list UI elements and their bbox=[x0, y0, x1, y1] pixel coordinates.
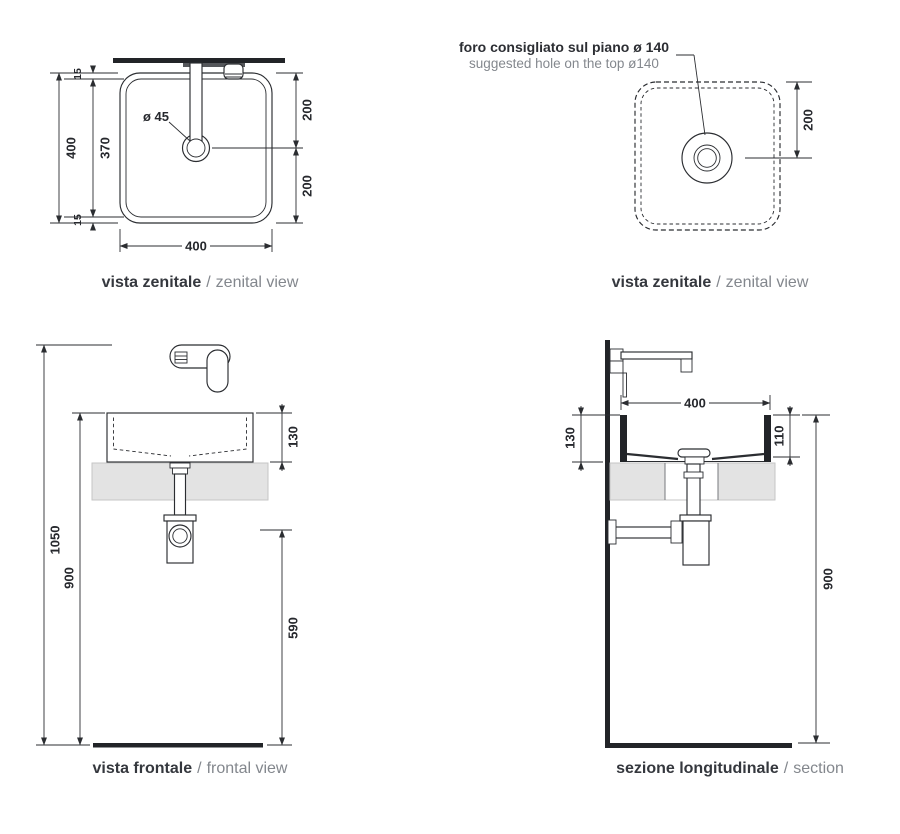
view-frontal: 1050 900 130 590 bbox=[36, 345, 301, 748]
countertop-right-block bbox=[718, 463, 775, 500]
basin-floor-left bbox=[627, 454, 678, 459]
dim-drain-diameter: ø 45 bbox=[143, 109, 169, 124]
dim-right-upper: 200 bbox=[300, 99, 315, 121]
caption-italian: vista zenitale bbox=[612, 274, 712, 291]
countertop-left-block bbox=[610, 463, 665, 500]
basin-front bbox=[107, 413, 253, 462]
spec-sheet-page: { "drawing": { "views": { "top_view_tap"… bbox=[0, 0, 900, 834]
trap-collar bbox=[671, 521, 682, 543]
tap-outlet bbox=[681, 359, 692, 372]
dim-hole-offset: 200 bbox=[801, 109, 816, 131]
basin-wall-right bbox=[764, 415, 771, 462]
suggested-hole-note: foro consigliato sul piano ø 140 suggest… bbox=[436, 40, 692, 71]
view-zenital-hole: 200 bbox=[635, 55, 816, 230]
caption-english: section bbox=[793, 760, 844, 777]
dim-right-lower: 200 bbox=[300, 175, 315, 197]
dim-overall-width-left: 400 bbox=[64, 137, 79, 159]
dim-inner-width: 370 bbox=[98, 137, 113, 159]
drain-tailpipe bbox=[175, 474, 186, 515]
tap-lever bbox=[623, 373, 627, 397]
popup-waste-neck bbox=[685, 457, 704, 464]
drain-flange bbox=[170, 463, 190, 468]
view-section: 400 130 110 900 bbox=[563, 340, 836, 748]
counter-cutout-inner bbox=[641, 88, 774, 224]
dim-inner-depth: 110 bbox=[772, 426, 787, 447]
caption-section: sezione longitudinale/section bbox=[605, 760, 855, 778]
caption-english: zenital view bbox=[216, 274, 299, 291]
dim-overall-width-bottom: 400 bbox=[185, 239, 207, 254]
view-zenital-basin: ø 45 400 370 15 15 200 200 bbox=[50, 58, 315, 254]
tap-spout bbox=[190, 63, 202, 142]
caption-english: zenital view bbox=[726, 274, 809, 291]
hole-inner bbox=[698, 149, 717, 168]
drain-leader-line bbox=[169, 122, 190, 141]
dim-rim-height-section: 900 bbox=[821, 568, 836, 590]
caption-italian: vista zenitale bbox=[102, 274, 202, 291]
caption-english: frontal view bbox=[207, 760, 288, 777]
tap-spout-section bbox=[621, 352, 692, 359]
dim-basin-width-section: 400 bbox=[684, 396, 706, 411]
technical-drawing-canvas: ø 45 400 370 15 15 200 200 bbox=[0, 0, 900, 834]
floor-line-section bbox=[605, 743, 792, 748]
caption-separator: / bbox=[197, 760, 201, 777]
basin-floor-right bbox=[712, 454, 764, 459]
caption-italian: vista frontale bbox=[93, 760, 193, 777]
caption-frontal: vista frontale/frontal view bbox=[80, 760, 300, 778]
dims-left bbox=[50, 66, 124, 230]
hole-outer bbox=[682, 133, 732, 183]
caption-separator: / bbox=[716, 274, 720, 291]
floor-line-front bbox=[93, 743, 263, 748]
trap-pipe bbox=[614, 527, 674, 538]
caption-italian: sezione longitudinale bbox=[616, 760, 779, 777]
note-english: suggested hole on the top ø140 bbox=[436, 56, 692, 71]
dims-right bbox=[212, 73, 303, 223]
dim-rim-height-front: 900 bbox=[62, 567, 77, 589]
caption-zenital-basin: vista zenitale/zenital view bbox=[90, 274, 310, 292]
trap-wall-flange bbox=[608, 520, 616, 544]
tap-aerator bbox=[175, 352, 187, 363]
note-italian: foro consigliato sul piano ø 140 bbox=[436, 40, 692, 56]
dim-basin-height-front: 130 bbox=[286, 426, 301, 448]
tap-handle-front bbox=[207, 350, 228, 392]
basin-wall-left bbox=[620, 415, 627, 462]
caption-zenital-hole: vista zenitale/zenital view bbox=[600, 274, 820, 292]
tap-wall-bar bbox=[113, 58, 285, 63]
popup-waste-cap bbox=[678, 449, 710, 457]
siphon-body-section bbox=[683, 521, 709, 565]
dim-offset-bottom: 15 bbox=[72, 214, 84, 226]
dim-basin-height-section: 130 bbox=[563, 427, 578, 449]
dims-frontal bbox=[36, 345, 292, 745]
counter-cutout-outer bbox=[635, 82, 780, 230]
tap-bracket-lower bbox=[610, 361, 623, 373]
dims-section bbox=[572, 395, 830, 743]
siphon-flange-section bbox=[680, 515, 711, 521]
dim-offset-top: 15 bbox=[72, 68, 84, 80]
dim-overall-height: 1050 bbox=[48, 526, 63, 555]
drain-inner bbox=[187, 139, 205, 157]
drain-nut bbox=[173, 468, 188, 474]
waste-collar bbox=[684, 472, 703, 478]
caption-separator: / bbox=[784, 760, 788, 777]
dim-trap-height: 590 bbox=[286, 617, 301, 639]
siphon-flange-front bbox=[164, 515, 196, 521]
caption-separator: / bbox=[206, 274, 210, 291]
